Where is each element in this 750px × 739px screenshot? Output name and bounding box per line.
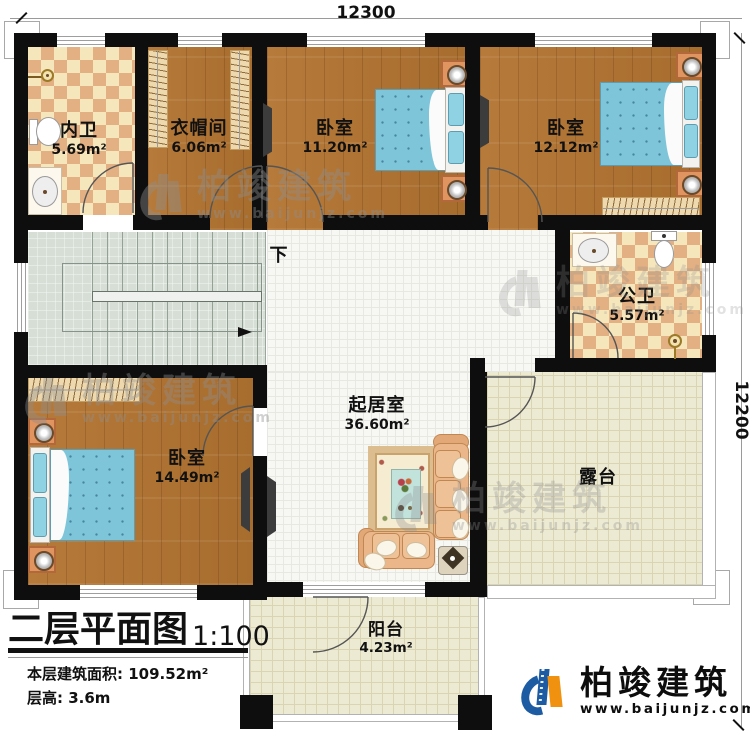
- room-label-bedroom-right: 卧室12.12m²: [516, 119, 616, 156]
- door-bedroom-right: [488, 168, 542, 222]
- balcony-pillar: [240, 695, 273, 729]
- window: [57, 33, 105, 47]
- dimension-tick: [733, 32, 745, 44]
- window: [178, 33, 222, 47]
- terrace-railing-right: [702, 372, 716, 599]
- room-label-terrace: 露台: [567, 468, 629, 489]
- bed-pillow: [684, 124, 698, 158]
- bed-pillow: [33, 453, 47, 493]
- title-underline: [8, 648, 248, 653]
- room-label-bedroom-top: 卧室11.20m²: [285, 119, 385, 156]
- drain-dot: [673, 339, 677, 343]
- floor-area-text: 本层建筑面积: 109.52m²: [27, 663, 208, 684]
- wall: [425, 33, 535, 47]
- tv-icon: [241, 467, 250, 532]
- sink-drain: [592, 249, 596, 253]
- stair-direction-arrow: [238, 327, 252, 337]
- terrace-railing-bottom: [487, 585, 716, 599]
- door-inner-bath: [83, 163, 133, 215]
- bed-pillow: [33, 497, 47, 537]
- brand-logo-icon: [522, 665, 572, 723]
- wall: [105, 33, 178, 47]
- lamp-icon: [682, 175, 702, 195]
- wall: [555, 230, 570, 372]
- toilet-button: [662, 234, 666, 238]
- shower-dot: [46, 74, 49, 77]
- stair-down-label: 下: [264, 246, 294, 267]
- window: [535, 33, 652, 47]
- room-label-bedroom-left: 卧室14.49m²: [137, 449, 237, 486]
- lamp-icon: [34, 423, 54, 443]
- drain-stem: [674, 347, 676, 359]
- window: [307, 33, 425, 47]
- wall: [28, 215, 83, 230]
- wall: [133, 215, 210, 230]
- wall: [14, 585, 80, 600]
- wall: [222, 33, 307, 47]
- wall: [253, 378, 267, 408]
- room-label-living: 起居室36.60m²: [327, 396, 427, 433]
- bed-pillow: [684, 86, 698, 120]
- room-label-cloakroom: 衣帽间6.06m²: [147, 119, 251, 156]
- plan-title: 二层平面图: [8, 600, 188, 652]
- sink-drain: [43, 190, 47, 194]
- window: [702, 263, 716, 335]
- wall: [253, 582, 303, 597]
- brand-name: 柏竣建筑: [580, 665, 750, 701]
- plan-title-row: 二层平面图 1:100: [8, 600, 270, 652]
- wall: [470, 358, 485, 372]
- wardrobe: [28, 377, 140, 402]
- table-item: [408, 506, 412, 510]
- bed-pillow: [448, 131, 464, 164]
- tv-icon: [263, 103, 272, 157]
- top-dimension-text: 12300: [330, 3, 402, 23]
- room-label-public-bath: 公卫5.57m²: [587, 287, 687, 324]
- lamp-icon: [447, 180, 467, 200]
- wall: [425, 582, 470, 597]
- tv-icon: [480, 95, 489, 148]
- lamp-icon: [34, 551, 54, 571]
- door-bedroom-top: [267, 166, 323, 222]
- wall: [538, 215, 716, 230]
- balcony-pillar: [458, 695, 492, 730]
- wall: [465, 47, 480, 230]
- window: [14, 263, 28, 332]
- floor-plan: 12300 12200: [0, 0, 750, 739]
- flower-decor: [396, 476, 414, 494]
- door-cloakroom: [210, 166, 262, 218]
- balcony-railing-bottom: [243, 714, 485, 722]
- hallway-floor: [267, 230, 555, 372]
- bed-pillow: [448, 93, 464, 126]
- lamp-icon: [682, 57, 702, 77]
- room-label-inner-bath: 内卫5.69m²: [38, 121, 120, 158]
- wall: [535, 358, 555, 372]
- brand-url: www.baijunjz.com: [580, 701, 750, 717]
- brand-logo: 柏竣建筑 www.baijunjz.com: [522, 665, 750, 723]
- table-item: [398, 505, 404, 511]
- title-thin-line: [8, 657, 248, 658]
- room-label-balcony: 阳台4.23m²: [346, 621, 426, 656]
- stair-center-rail: [92, 291, 262, 302]
- wall: [14, 33, 28, 263]
- wall: [555, 358, 716, 372]
- wall: [323, 215, 488, 230]
- wall: [14, 365, 267, 378]
- toilet-bowl-icon: [654, 240, 674, 268]
- right-dimension-text: 12200: [731, 380, 750, 440]
- lamp-icon: [447, 65, 467, 85]
- balcony-sliding-door: [303, 582, 425, 597]
- tv-icon: [267, 476, 276, 537]
- corner-lamp-center: [450, 556, 455, 561]
- wall: [253, 456, 267, 597]
- window: [80, 586, 197, 599]
- floor-height-text: 层高: 3.6m: [27, 687, 110, 708]
- door-terrace: [485, 377, 535, 427]
